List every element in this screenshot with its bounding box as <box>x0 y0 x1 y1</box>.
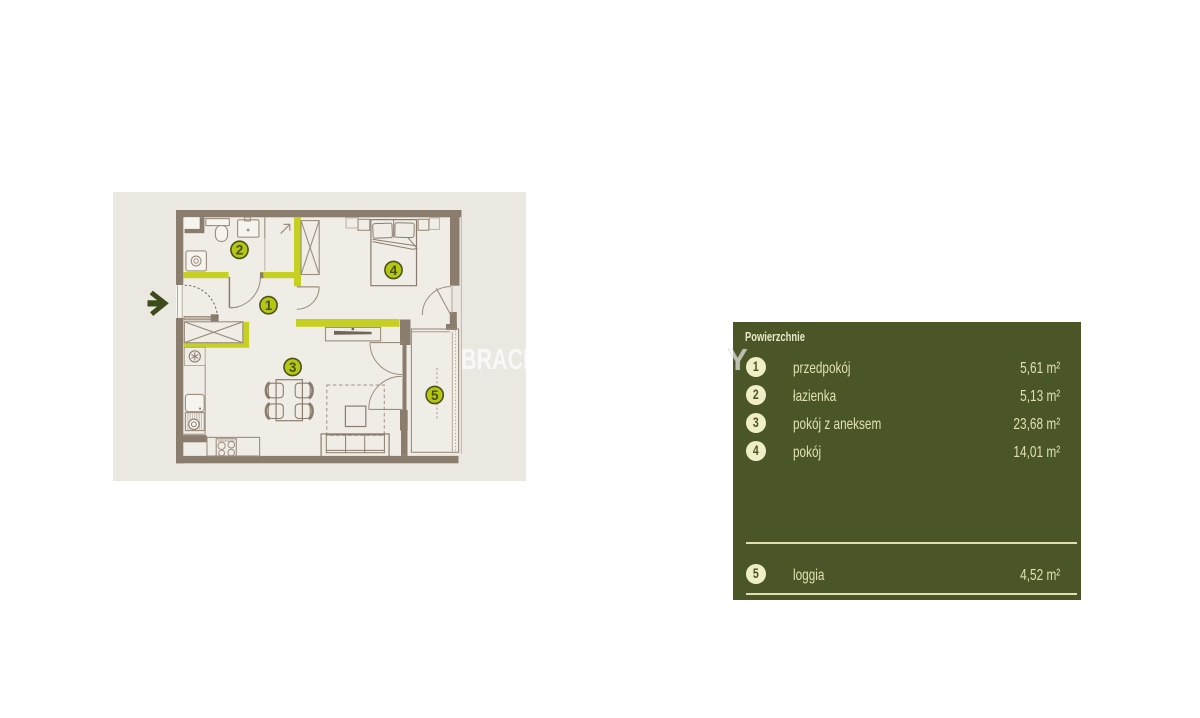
svg-text:5: 5 <box>431 388 439 403</box>
svg-text:1: 1 <box>265 298 273 313</box>
svg-text:4: 4 <box>390 263 398 278</box>
svg-text:2: 2 <box>236 243 244 258</box>
svg-text:3: 3 <box>289 360 297 375</box>
